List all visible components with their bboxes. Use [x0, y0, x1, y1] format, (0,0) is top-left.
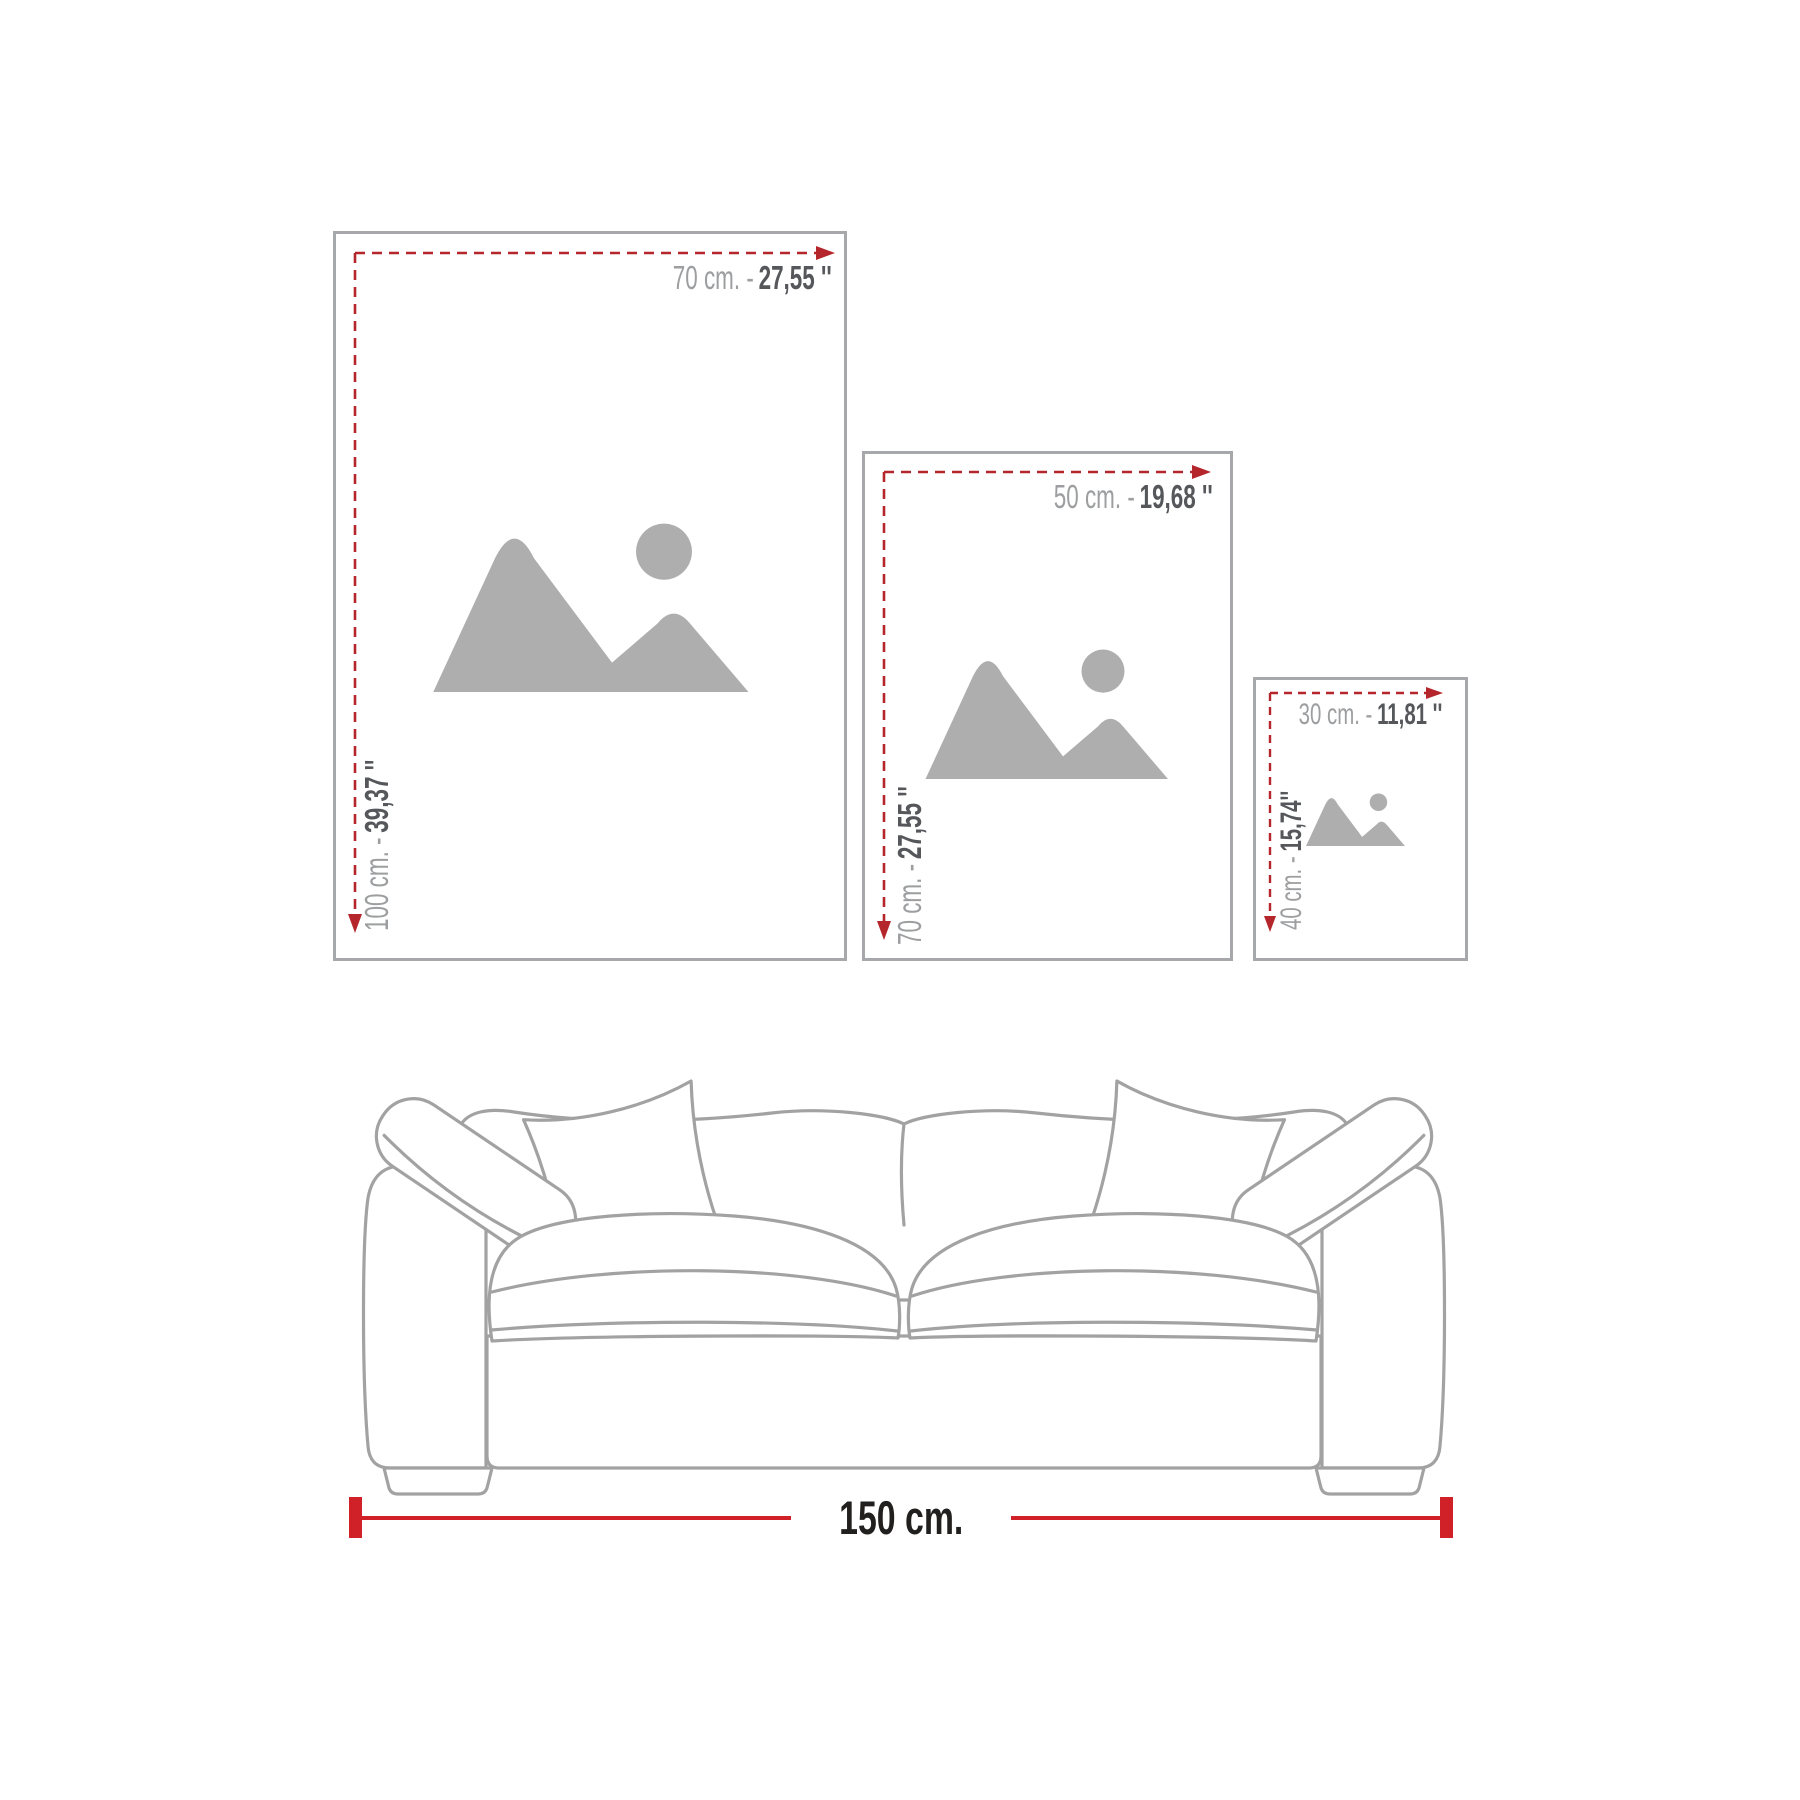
sofa-back-center-seam: [901, 1124, 904, 1225]
image-placeholder-icon: [430, 506, 755, 692]
width-inches-value: 19,68 '': [1140, 478, 1213, 515]
arrowhead-right-icon: [816, 246, 835, 260]
right-throw-pillow: [1075, 1081, 1284, 1301]
measure-end-cap-left: [349, 1497, 362, 1538]
sofa-base: [487, 1336, 1321, 1468]
mountains-shape: [433, 539, 748, 692]
right-foot: [1316, 1468, 1424, 1494]
height-cm-value: 40 cm. -: [1275, 856, 1308, 930]
sofa-back: [453, 1110, 1356, 1300]
seat-cushion-piping: [492, 1271, 896, 1296]
width-dimension-label: 50 cm. -19,68 '': [979, 480, 1213, 515]
poster-frame-medium: 50 cm. -19,68 '' 70 cm. -27,55 '': [862, 451, 1233, 961]
pillow-crease: [631, 1236, 651, 1283]
arm-cushion-seam: [1258, 1135, 1430, 1256]
poster-frame-large: 70 cm. -27,55 '' 100 cm. -39,37 '': [333, 231, 847, 961]
mountains-shape: [926, 661, 1169, 779]
left-throw-pillow: [524, 1081, 733, 1301]
right-arm-cushion: [1218, 1085, 1445, 1272]
width-inches-value: 11,81 '': [1377, 698, 1442, 731]
height-cm-value: 100 cm. -: [358, 837, 395, 931]
right-seat-cushion: [908, 1214, 1319, 1341]
arm-cushion-seam: [378, 1135, 550, 1256]
poster-frame-small: 30 cm. -11,81 '' 40 cm. -15,74'': [1253, 677, 1468, 961]
width-inches-value: 27,55 '': [759, 259, 832, 296]
width-dimension-label: 70 cm. -27,55 '': [598, 261, 832, 296]
seat-cushion-piping: [912, 1271, 1316, 1296]
image-placeholder-icon: [1305, 788, 1407, 846]
height-cm-value: 70 cm. -: [891, 864, 928, 945]
sofa-width-label: 150 cm.: [839, 1494, 963, 1541]
sun-shape: [1082, 650, 1125, 693]
measure-line-left: [362, 1516, 791, 1520]
sun-shape: [636, 524, 692, 580]
left-arm-front: [364, 1166, 487, 1468]
left-seat-cushion: [489, 1214, 900, 1341]
image-placeholder-icon: [923, 636, 1173, 779]
height-inches-value: 15,74'': [1275, 791, 1308, 852]
left-arm-cushion: [362, 1085, 589, 1272]
seat-cushion-piping: [491, 1322, 897, 1331]
height-inches-value: 27,55 '': [891, 786, 928, 859]
seat-cushion-piping: [911, 1322, 1317, 1331]
width-cm-value: 50 cm. -: [1054, 478, 1135, 515]
arrowhead-right-icon: [1192, 465, 1211, 479]
mountains-shape: [1306, 798, 1405, 846]
sofa-width-measurement: 150 cm.: [349, 1497, 1453, 1538]
pillow-crease: [1157, 1236, 1177, 1283]
left-foot: [384, 1468, 492, 1494]
size-guide-diagram: 70 cm. -27,55 '' 100 cm. -39,37 '' 50 cm…: [0, 0, 1800, 1800]
width-dimension-label: 30 cm. -11,81 '': [1231, 699, 1442, 731]
height-inches-value: 39,37 '': [358, 760, 395, 833]
width-cm-value: 70 cm. -: [673, 259, 754, 296]
measure-end-cap-right: [1440, 1497, 1453, 1538]
right-arm-front: [1322, 1166, 1445, 1468]
arrowhead-down-icon: [877, 921, 891, 940]
width-cm-value: 30 cm. -: [1298, 698, 1372, 731]
sun-shape: [1370, 793, 1388, 811]
measure-line-right: [1011, 1516, 1440, 1520]
